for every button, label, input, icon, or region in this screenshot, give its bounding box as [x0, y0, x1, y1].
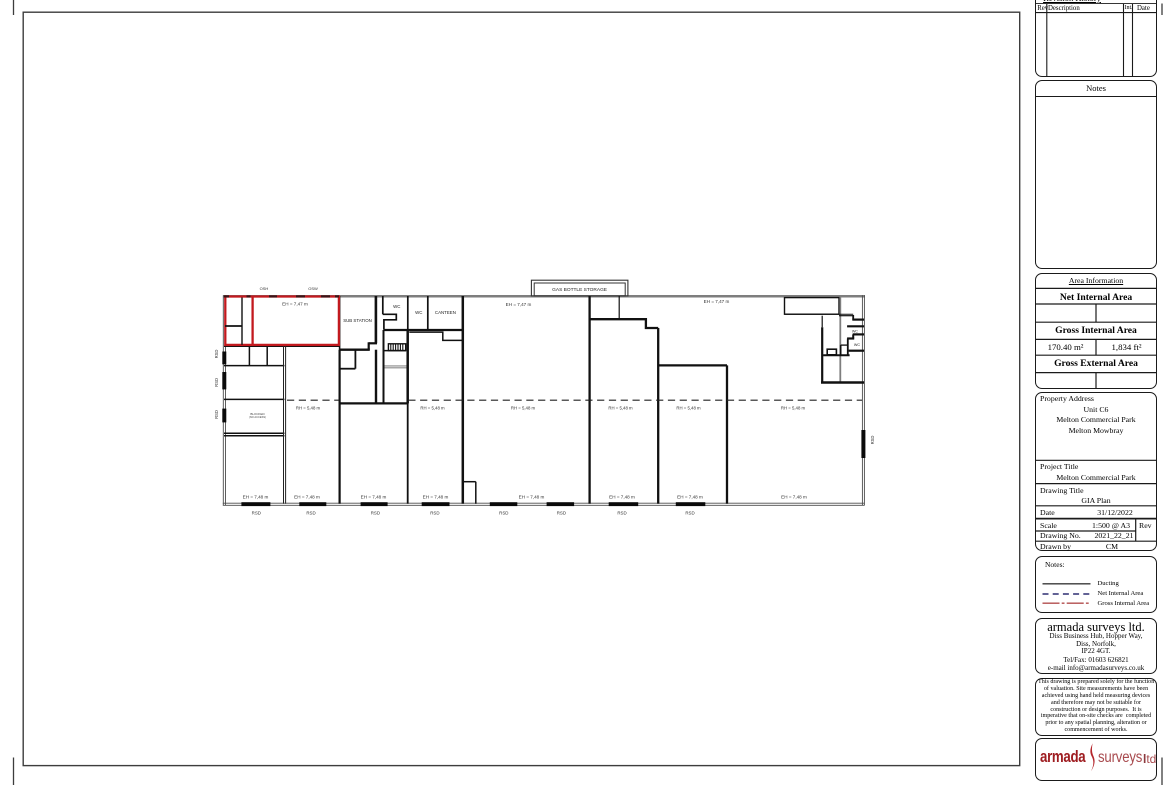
- svg-text:EH = 7,48 m: EH = 7,48 m: [519, 495, 545, 500]
- svg-text:CANTEEN: CANTEEN: [435, 310, 456, 315]
- svg-text:WC: WC: [852, 329, 858, 333]
- svg-text:RH = 5,48 m: RH = 5,48 m: [676, 405, 701, 410]
- svg-text:RSD: RSD: [214, 378, 219, 387]
- svg-text:RSD: RSD: [371, 510, 380, 515]
- svg-text:EH = 7,47 m: EH = 7,47 m: [506, 302, 532, 307]
- svg-text:RSD: RSD: [685, 510, 694, 515]
- svg-text:OSW: OSW: [308, 286, 318, 291]
- svg-text:RSD: RSD: [252, 510, 261, 515]
- svg-text:EH = 7,48 m: EH = 7,48 m: [609, 495, 635, 500]
- svg-text:RSD: RSD: [214, 350, 219, 359]
- svg-text:RSD: RSD: [870, 436, 875, 445]
- svg-text:EH = 7,48 m: EH = 7,48 m: [677, 495, 703, 500]
- svg-text:RH = 5,48 m: RH = 5,48 m: [296, 405, 321, 410]
- svg-text:EH = 7,48 m: EH = 7,48 m: [294, 495, 320, 500]
- svg-text:RSD: RSD: [557, 510, 566, 515]
- svg-text:RSD: RSD: [214, 410, 219, 419]
- svg-text:RSD: RSD: [306, 510, 315, 515]
- svg-text:GAS BOTTLE STORAGE: GAS BOTTLE STORAGE: [552, 287, 607, 293]
- svg-text:SUB STATION: SUB STATION: [343, 318, 372, 323]
- svg-text:RSD: RSD: [499, 510, 508, 515]
- svg-text:EH = 7,48 m: EH = 7,48 m: [423, 495, 449, 500]
- svg-text:RSD: RSD: [617, 510, 626, 515]
- svg-text:RH = 5,48 m: RH = 5,48 m: [608, 405, 633, 410]
- svg-text:EH = 7,48 m: EH = 7,48 m: [781, 495, 807, 500]
- svg-text:EH = 7,47 m: EH = 7,47 m: [282, 301, 308, 306]
- svg-text:WC: WC: [393, 304, 400, 309]
- svg-text:RH = 5,48 m: RH = 5,48 m: [511, 405, 536, 410]
- svg-text:OSH: OSH: [260, 286, 269, 291]
- svg-text:EH = 7,48 m: EH = 7,48 m: [243, 495, 269, 500]
- svg-text:(NO ACCESS): (NO ACCESS): [249, 415, 266, 419]
- svg-text:RSD: RSD: [430, 510, 439, 515]
- svg-text:EH = 7,47 m: EH = 7,47 m: [704, 299, 730, 304]
- svg-text:WC: WC: [415, 310, 422, 315]
- svg-text:RH = 5,48 m: RH = 5,48 m: [420, 405, 445, 410]
- svg-text:WC: WC: [854, 343, 860, 347]
- svg-text:EH = 7,48 m: EH = 7,48 m: [361, 495, 387, 500]
- svg-text:RH = 5,48 m: RH = 5,48 m: [781, 405, 806, 410]
